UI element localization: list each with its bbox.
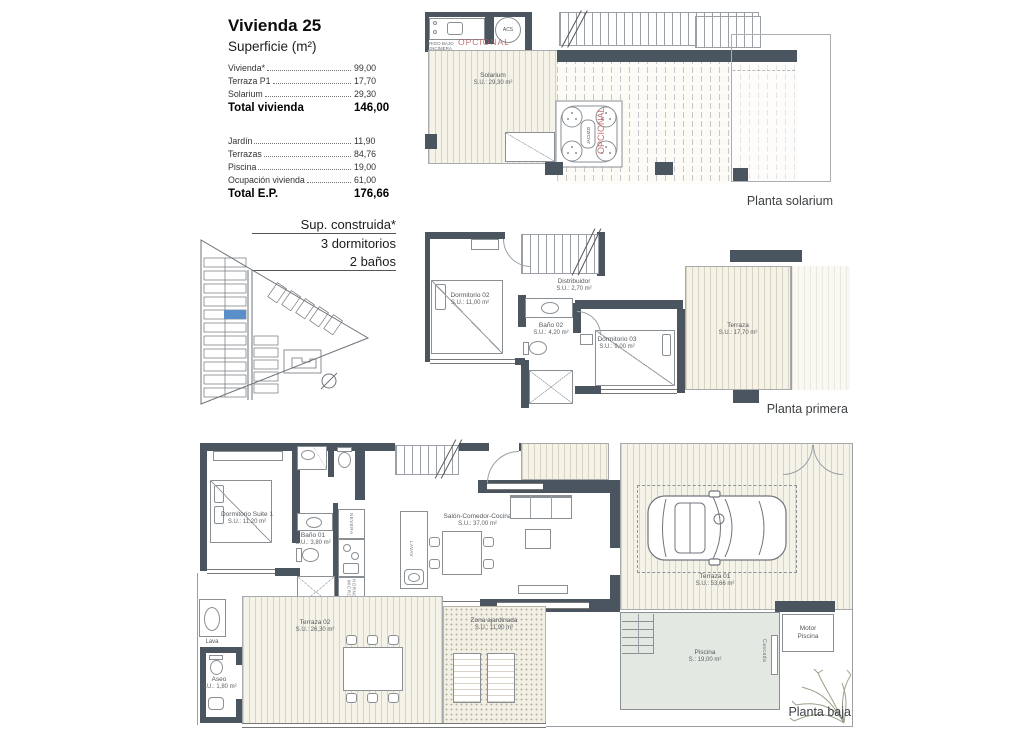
toilet-icon [529, 341, 547, 355]
wall [355, 443, 365, 500]
chair-icon [429, 559, 440, 569]
door-arc [577, 311, 601, 335]
room-label-terraza: Terraza S.U.: 17,70 m² [703, 322, 773, 338]
room-label-suite: Dormitorio Suite 1 S.U.: 11,20 m² [212, 511, 282, 527]
room-label-bano01: Baño 01 S.U.: 3,80 m² [291, 532, 335, 548]
outdoor-table [343, 647, 403, 691]
door-arc [503, 239, 531, 267]
boundary-line [791, 266, 792, 390]
area-row-value: 29,30 [354, 89, 396, 99]
area-row-value: 17,70 [354, 76, 396, 86]
area-row-label: Vivienda* [228, 63, 265, 73]
window [601, 389, 677, 394]
pillow-icon [214, 485, 224, 503]
sink-icon [204, 607, 220, 631]
tv-bench [518, 585, 568, 594]
area-row: Ocupación vivienda61,00 [228, 175, 396, 188]
chair-icon [483, 537, 494, 547]
chair-icon [429, 537, 440, 547]
room-label-solarium: Solarium S.U.: 29,30 m² [450, 72, 536, 88]
cascada-label: Cascada [761, 639, 767, 662]
leader-dots [258, 169, 351, 170]
pillow-icon [662, 334, 671, 356]
site-boundary [201, 240, 368, 404]
boundary-line [852, 443, 853, 727]
leader-dots [273, 83, 351, 84]
caption-planta-baja: Planta baja [651, 705, 851, 719]
room-label-piscina: Piscina S.: 19,00 m² [677, 649, 733, 665]
room-label-dorm03: Dormitorio 03 S.U.: 9,00 m² [585, 336, 649, 352]
wall [677, 309, 685, 393]
caption-planta-primera: Planta primera [648, 402, 848, 416]
dining-table [442, 531, 482, 575]
total-row: Total E.P.176,66 [228, 188, 396, 206]
room-name: Solarium [450, 72, 536, 80]
area-row: Vivienda*99,00 [228, 63, 396, 76]
sun-lounger [487, 653, 515, 703]
entry-door-arc [487, 451, 519, 483]
opcional-label: OPCIONAL [451, 37, 517, 47]
sofa-cushion-line [551, 496, 552, 518]
area-row-value: 11,90 [354, 136, 396, 146]
page-subtitle: Superficie (m²) [228, 39, 396, 54]
total-label: Total E.P. [228, 188, 278, 200]
wall [610, 493, 620, 548]
lava-label: Lava [197, 639, 227, 645]
pergola-frame [731, 34, 831, 182]
room-label-terraza01: Terraza 01 S.U.: 53,66 m² [677, 573, 753, 589]
hob-icon [351, 552, 359, 560]
leader-dots [265, 96, 351, 97]
coffee-table [525, 529, 551, 549]
fence [242, 723, 546, 728]
room-label-distribuidor: Distribuidor S.U.: 2,70 m² [543, 278, 605, 294]
sink-icon [541, 302, 559, 314]
hob-knob-icon [433, 30, 437, 34]
leader-dots [254, 143, 351, 144]
sink-icon [301, 450, 315, 460]
title-block: Vivienda 25 Superficie (m²) Vivienda*99,… [228, 16, 396, 206]
wall [275, 568, 300, 576]
leader-dots [307, 182, 351, 183]
area-row-value: 61,00 [354, 175, 396, 185]
pool-step-divider [638, 614, 639, 654]
total-label: Total vivienda [228, 102, 304, 114]
room-label-bano02: Baño 02 S.U.: 4,20 m² [525, 322, 577, 338]
page-title: Vivienda 25 [228, 16, 396, 36]
site-plan [188, 232, 393, 412]
toilet-icon [302, 548, 319, 562]
dishwasher-label: LAVAV [409, 541, 414, 557]
sink-icon [408, 573, 420, 582]
wall [575, 300, 683, 309]
wall [328, 443, 334, 477]
entry-deck [521, 443, 609, 480]
wall [730, 250, 802, 262]
area-row: Solarium29,30 [228, 89, 396, 102]
toilet-icon [210, 660, 223, 675]
room-label-motor: Motor Piscina [793, 625, 823, 642]
area-row-value: 84,76 [354, 149, 396, 159]
area-row-value: 19,00 [354, 162, 396, 172]
pillar [545, 162, 563, 175]
wardrobe [213, 451, 283, 461]
sink-icon [447, 22, 463, 35]
chair-icon [388, 635, 399, 645]
area-row: Piscina19,00 [228, 162, 396, 175]
room-label-terraza02: Terraza 02 S.U.: 26,30 m² [277, 619, 353, 635]
wall [425, 232, 505, 239]
area-row-label: Piscina [228, 162, 256, 172]
area-row-value: 99,00 [354, 63, 396, 73]
chair-icon [367, 693, 378, 703]
chair-icon [367, 635, 378, 645]
wall [775, 601, 835, 612]
room-area: S.U.: 29,30 m² [450, 80, 536, 88]
leader-dots [264, 156, 351, 157]
area-row: Terraza P117,70 [228, 76, 396, 89]
boundary-line [546, 726, 853, 727]
roof-hatch [505, 132, 555, 162]
car-top-view [645, 489, 789, 567]
leader-dots [267, 70, 351, 71]
total-value: 146,00 [354, 102, 396, 114]
area-row: Terrazas84,76 [228, 149, 396, 162]
window [430, 359, 515, 364]
waterfall-feature [771, 635, 778, 675]
sink-icon [343, 563, 359, 574]
jacuzzi-opcional-label: OPCIONAL [596, 107, 606, 154]
window [487, 483, 543, 490]
hob-knob-icon [433, 21, 437, 25]
highlighted-unit [224, 310, 246, 319]
neighbor-deck [792, 266, 850, 390]
wall [459, 443, 489, 451]
wall [200, 443, 207, 571]
wall [525, 12, 532, 50]
total-value: 176,66 [354, 188, 396, 200]
chair-icon [483, 559, 494, 569]
plan-baja: Dormitorio Suite 1 S.U.: 11,20 m² Baño 0… [185, 433, 855, 732]
area-row: Jardín11,90 [228, 136, 396, 149]
wall [425, 12, 531, 17]
sun-lounger [453, 653, 481, 703]
boundary-line [197, 573, 198, 725]
area-row-label: Terraza P1 [228, 76, 271, 86]
area-row-label: Solarium [228, 89, 263, 99]
total-row: Total vivienda146,00 [228, 102, 396, 120]
chair-icon [388, 693, 399, 703]
sofa-cushion-line [530, 496, 531, 518]
plan-primera: Dormitorio 02 S.U.: 11,00 m² Distribuido… [425, 216, 850, 416]
caption-planta-solarium: Planta solarium [633, 194, 833, 208]
chair-icon [346, 693, 357, 703]
fridge-label: NEVERA [349, 513, 354, 535]
hand-basin-icon [208, 697, 224, 710]
pillar [425, 134, 437, 149]
wall [521, 360, 529, 408]
area-row-label: Terrazas [228, 149, 262, 159]
table-gap [228, 120, 396, 136]
area-row-label: Ocupación vivienda [228, 175, 305, 185]
pillar [655, 162, 673, 175]
pillar [733, 168, 748, 181]
area-row-label: Jardín [228, 136, 252, 146]
jacuzzi: JACUZZI OPCIONAL [555, 100, 623, 168]
window [207, 569, 275, 574]
floor-plan-sheet: Vivienda 25 Superficie (m²) Vivienda*99,… [0, 0, 1024, 732]
room-label-aseo: Aseo S.U.: 1,80 m² [201, 676, 237, 692]
shower [529, 370, 573, 404]
plan-solarium: FRIGO BAJO ENCIMERA ACS OPCIONAL Solariu… [425, 10, 835, 210]
room-label-dorm02: Dormitorio 02 S.U.: 11,00 m² [435, 292, 505, 308]
sofa [510, 495, 572, 519]
sink-icon [306, 517, 322, 528]
toilet-icon [338, 452, 351, 468]
room-label-zona: Zona ajardinada S.U.: 11,90 m² [464, 617, 524, 633]
jacuzzi-label: JACUZZI [586, 127, 591, 144]
chair-icon [346, 635, 357, 645]
hob-icon [343, 544, 351, 552]
wall [425, 232, 430, 362]
wall [575, 386, 601, 394]
wardrobe [471, 239, 499, 250]
fridge: NEVERA [338, 509, 365, 539]
